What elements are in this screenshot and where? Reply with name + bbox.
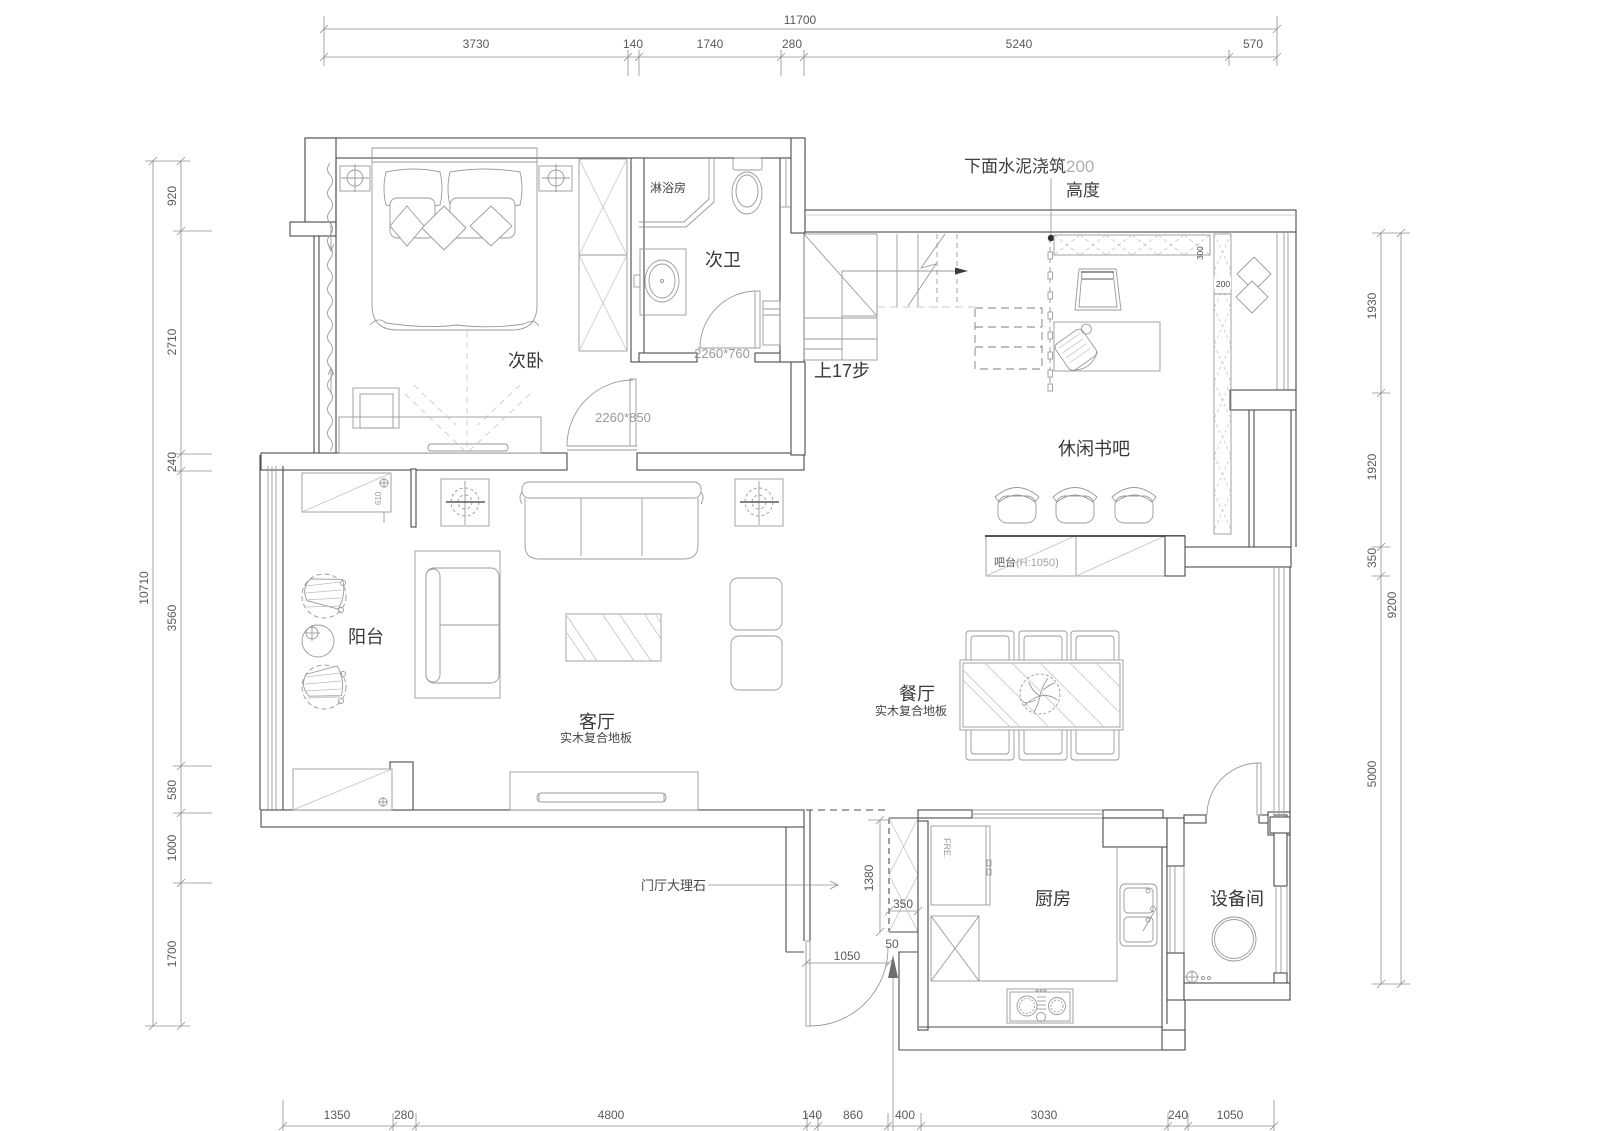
- svg-text:次卧: 次卧: [508, 351, 544, 371]
- svg-text:门厅大理石: 门厅大理石: [641, 878, 706, 893]
- svg-text:2710: 2710: [165, 328, 179, 355]
- svg-text:1700: 1700: [165, 940, 179, 967]
- svg-text:1000: 1000: [165, 834, 179, 861]
- svg-text:860: 860: [843, 1108, 863, 1122]
- svg-text:淋浴房: 淋浴房: [650, 180, 686, 195]
- svg-text:厨房: 厨房: [1035, 889, 1071, 909]
- svg-text:920: 920: [165, 186, 179, 206]
- svg-text:3730: 3730: [463, 37, 490, 51]
- svg-text:610: 610: [374, 491, 383, 505]
- svg-text:200: 200: [1216, 279, 1230, 289]
- svg-text:280: 280: [394, 1108, 414, 1122]
- svg-text:300: 300: [1196, 246, 1205, 260]
- svg-text:9200: 9200: [1385, 591, 1399, 618]
- svg-text:4800: 4800: [598, 1108, 625, 1122]
- svg-text:350: 350: [1365, 548, 1379, 568]
- svg-text:580: 580: [165, 780, 179, 800]
- svg-text:FRE.: FRE.: [942, 838, 952, 859]
- svg-text:实木复合地板: 实木复合地板: [875, 703, 947, 718]
- svg-text:1380: 1380: [862, 864, 876, 891]
- svg-text:10710: 10710: [137, 571, 151, 605]
- svg-text:上17步: 上17步: [814, 361, 870, 381]
- svg-text:1930: 1930: [1365, 292, 1379, 319]
- svg-text:1050: 1050: [834, 949, 861, 963]
- svg-text:3030: 3030: [1031, 1108, 1058, 1122]
- svg-text:休闲书吧: 休闲书吧: [1058, 439, 1130, 459]
- svg-text:吧台(H:1050): 吧台(H:1050): [994, 555, 1059, 569]
- svg-text:1350: 1350: [324, 1108, 351, 1122]
- svg-text:次卫: 次卫: [705, 250, 741, 270]
- svg-text:11700: 11700: [784, 13, 817, 27]
- svg-text:下面水泥浇筑200: 下面水泥浇筑200: [964, 157, 1094, 176]
- svg-text:5240: 5240: [1006, 37, 1033, 51]
- svg-text:280: 280: [782, 37, 802, 51]
- svg-text:2260*850: 2260*850: [595, 410, 651, 425]
- svg-text:240: 240: [165, 452, 179, 472]
- svg-text:350: 350: [893, 897, 913, 911]
- svg-text:2260*760: 2260*760: [694, 346, 750, 361]
- svg-text:140: 140: [802, 1108, 822, 1122]
- svg-text:1050: 1050: [1217, 1108, 1244, 1122]
- svg-text:5000: 5000: [1365, 760, 1379, 787]
- svg-text:240: 240: [1168, 1108, 1188, 1122]
- svg-text:50: 50: [885, 937, 899, 951]
- svg-text:设备间: 设备间: [1210, 889, 1264, 909]
- svg-text:阳台: 阳台: [348, 627, 384, 647]
- svg-text:餐厅: 餐厅: [899, 684, 935, 704]
- svg-text:实木复合地板: 实木复合地板: [560, 730, 632, 745]
- svg-text:570: 570: [1243, 37, 1263, 51]
- svg-text:3560: 3560: [165, 604, 179, 631]
- svg-text:客厅: 客厅: [579, 712, 615, 732]
- svg-text:1920: 1920: [1365, 453, 1379, 480]
- svg-text:400: 400: [895, 1108, 915, 1122]
- svg-text:高度: 高度: [1066, 181, 1100, 200]
- svg-text:140: 140: [623, 37, 643, 51]
- svg-text:1740: 1740: [697, 37, 724, 51]
